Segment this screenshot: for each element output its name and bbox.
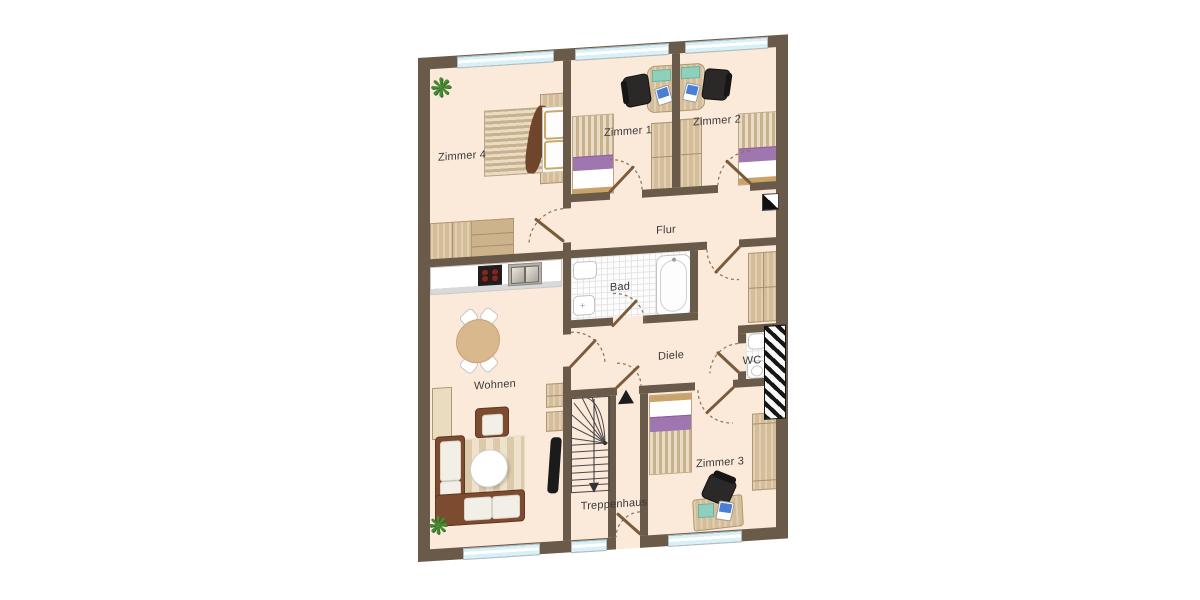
desk-mat [698, 503, 714, 518]
wall [608, 395, 616, 538]
wall [739, 237, 776, 247]
wall [738, 333, 746, 344]
single-bed [738, 111, 777, 185]
room-label-wc: WC [743, 354, 762, 367]
room-label-bad: Bad [610, 280, 630, 293]
door-arc-entrance [616, 512, 640, 538]
room-label-zimmer3: Zimmer 3 [696, 455, 744, 470]
room-label-zimmer1: Zimmer 1 [604, 124, 652, 139]
pillow [544, 110, 565, 140]
room-label-flur: Flur [656, 224, 676, 237]
bed-duvet [650, 430, 691, 475]
wall [690, 250, 698, 313]
room-label-zimmer2: Zimmer 2 [693, 113, 741, 128]
up-arrow-icon [618, 389, 634, 404]
bathtub [656, 254, 691, 318]
floor-plan: ❋ [418, 34, 788, 562]
wall [563, 192, 610, 203]
stairs-walk-line [589, 398, 607, 493]
door-leaf [536, 218, 563, 243]
tv [547, 437, 562, 493]
door-arc-zimmer4 [529, 209, 563, 245]
wall [418, 57, 430, 562]
wall [563, 60, 571, 209]
desk-mat [681, 66, 700, 79]
door-arc-flur-diele [707, 248, 739, 282]
window [571, 539, 607, 553]
room-label-treppenhaus: Treppenhaus [581, 496, 648, 512]
wall [750, 181, 776, 191]
office-chair [622, 73, 652, 109]
office-chair [701, 68, 731, 101]
door-arc-zimmer1 [610, 158, 642, 192]
wardrobe [680, 118, 702, 189]
washbasin [573, 261, 597, 281]
cabinet [432, 387, 452, 440]
double-bed [484, 106, 564, 175]
window [575, 43, 669, 61]
plant-icon: ❋ [430, 74, 452, 101]
plant-icon: ❋ [428, 514, 448, 539]
door-arc-wohnen [571, 330, 605, 366]
shaft-hatch [764, 325, 786, 420]
orientation-marker-icon [762, 193, 779, 211]
wardrobe [748, 251, 778, 323]
room-label-diele: Diele [658, 349, 684, 363]
stairs [571, 396, 610, 493]
wall [571, 318, 613, 329]
armchair [475, 406, 509, 438]
door-leaf [571, 341, 595, 367]
door-arc-zimmer3 [698, 388, 733, 425]
single-bed [649, 393, 692, 476]
door-arc-wc [710, 344, 738, 374]
door-arc-treppenhaus [617, 362, 641, 388]
wardrobe [752, 412, 778, 491]
pillow [544, 140, 565, 170]
kitchen-sink [508, 262, 542, 286]
wall [640, 393, 648, 536]
wall [563, 366, 571, 541]
sofa [435, 489, 525, 527]
door-leaf [718, 352, 738, 373]
wall [776, 34, 788, 539]
wardrobe [651, 122, 674, 191]
door-leaf [618, 513, 640, 535]
room-label-zimmer4: Zimmer 4 [438, 149, 486, 164]
wall [672, 53, 680, 188]
window [457, 50, 554, 68]
toilet: + [573, 295, 595, 316]
bed-duvet [739, 112, 776, 148]
door-leaf [716, 248, 739, 272]
stove [478, 265, 502, 287]
room-label-wohnen: Wohnen [474, 378, 516, 393]
stairs-arrow-icon [589, 482, 599, 493]
door-leaf [617, 367, 638, 387]
desk-mat [652, 69, 671, 82]
door-leaf [707, 388, 733, 413]
